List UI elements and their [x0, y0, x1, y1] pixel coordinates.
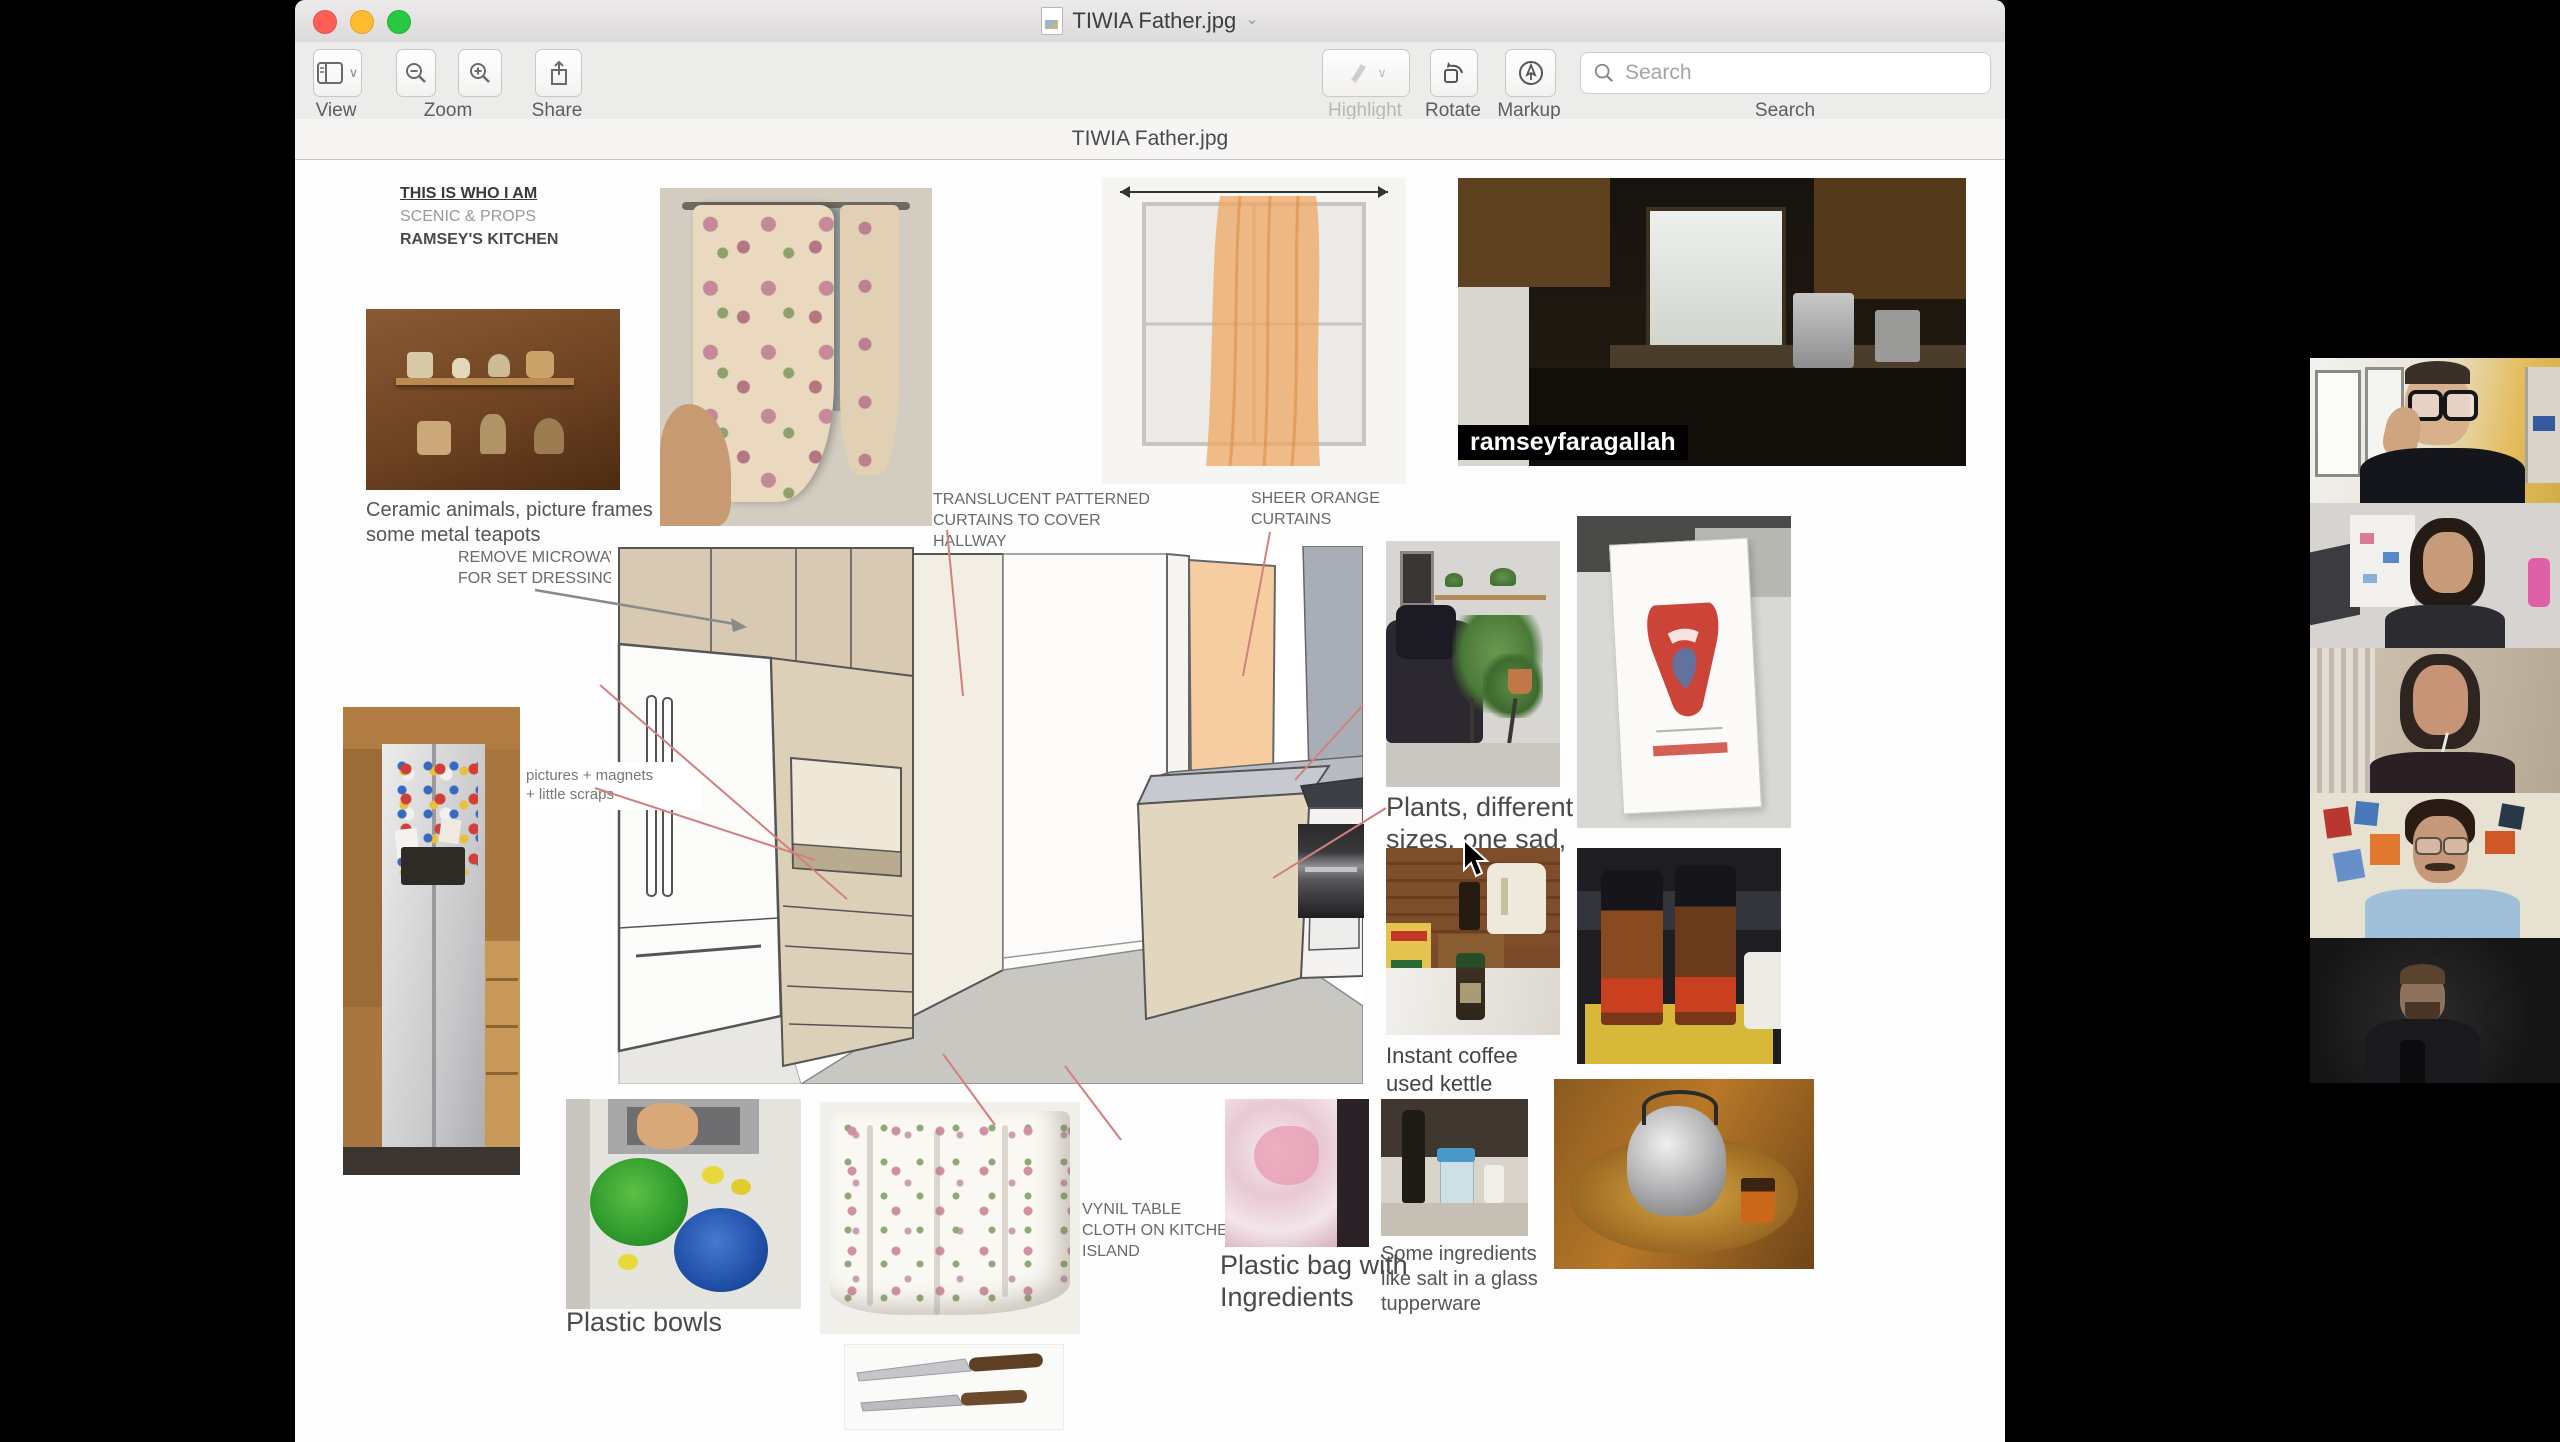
picture-frame-shape [526, 351, 554, 378]
ceramic-shelf-photo [366, 309, 620, 490]
fridge-magnets-photo [343, 707, 520, 1175]
wall-card-shape [2354, 801, 2379, 826]
glass-tupperware-shape [1440, 1157, 1474, 1206]
spice-jar-shape [1601, 870, 1662, 1026]
plastic-bowls-photo [566, 1099, 801, 1309]
floor-shadow-shape [343, 1147, 520, 1175]
share-icon [548, 60, 570, 86]
toolbar: ∨ View Zoom [295, 42, 2005, 119]
knives-photo [844, 1344, 1064, 1430]
jar-label-shape [1460, 983, 1481, 1003]
knives-graphic [845, 1345, 1063, 1429]
translucent-curtains-caption: TRANSLUCENT PATTERNED CURTAINS TO COVER … [933, 490, 1150, 552]
tablecloth-photo [820, 1102, 1080, 1334]
bag-contents-shape [1254, 1126, 1319, 1185]
window-shape [2315, 370, 2361, 478]
bag-logo-graphic [1610, 539, 1761, 814]
search-field[interactable] [1580, 52, 1991, 94]
search-icon [1593, 62, 1615, 84]
kettle-photo [1554, 1079, 1814, 1269]
terracotta-pot-shape [1508, 669, 1532, 694]
view-button[interactable]: ∨ [313, 49, 362, 97]
markup-pen-icon [1517, 59, 1545, 87]
magnifier-plus-icon [468, 61, 492, 85]
preview-window: TIWIA Father.jpg ⌄ ∨ View [295, 0, 2005, 1442]
markup-button[interactable] [1505, 49, 1556, 97]
plastic-bag-photo [1225, 1099, 1369, 1247]
search-input[interactable] [1623, 60, 1957, 86]
upper-cabinet-shape [1814, 178, 1966, 299]
participant-hair [2405, 361, 2470, 384]
stove-handle-shape [1305, 867, 1358, 872]
board-title: THIS IS WHO I AM [400, 182, 558, 205]
eyeglasses-shape [2443, 390, 2479, 421]
metal-teapot-shape [534, 418, 564, 454]
orange-curtain-graphic [1102, 178, 1406, 484]
mustache-shape [2425, 863, 2455, 872]
white-cup-shape [1744, 952, 1781, 1030]
window-titlebar[interactable]: TIWIA Father.jpg ⌄ [295, 0, 2005, 43]
fridge-dispenser-shape [401, 847, 465, 884]
upper-cabinet-shape [343, 707, 520, 749]
kitchen-sketch-drawing [611, 546, 1363, 1084]
oil-bottle-shape [1402, 1110, 1426, 1203]
chevron-down-icon: ∨ [349, 65, 359, 81]
participant-torso [2365, 889, 2520, 938]
eyeglasses-shape [2415, 837, 2442, 856]
mouse-cursor [1462, 838, 1492, 880]
paper-scrap-shape [439, 818, 462, 845]
plant-shelf-shape [1435, 595, 1546, 600]
shelf-item-shape [2533, 416, 2556, 431]
counter-shape [1381, 1203, 1528, 1236]
paper-bag-shape [1609, 538, 1762, 815]
sidebar-view-icon [317, 62, 343, 84]
upper-cabinet-shape [1458, 178, 1610, 287]
poster-mark [2383, 552, 2400, 563]
drawer-line [486, 978, 518, 981]
small-plant-shape [1490, 568, 1516, 586]
wood-shelf-shape [396, 378, 574, 385]
tea-glass-shape [1741, 1178, 1775, 1224]
appliance-shape [1875, 310, 1921, 362]
picture-frame-shape [407, 352, 433, 378]
screen: { "window": { "title": "TIWIA Father.jpg… [0, 0, 2560, 1442]
drawer-line [486, 1025, 518, 1028]
orange-curtains-photo [1102, 178, 1406, 484]
dark-background-shape [1337, 1099, 1369, 1247]
poster-mark [2363, 574, 2377, 583]
participant-torso [2385, 605, 2505, 649]
lemon-shape [618, 1254, 638, 1270]
window-shape [1646, 207, 1786, 353]
ceramic-animal-shape [488, 354, 510, 377]
coffee-tin-shape [1459, 882, 1480, 931]
video-name-tag: ramseyfaragallah [1458, 425, 1688, 460]
spice-jars-photo [1577, 848, 1781, 1064]
wall-card-shape [2333, 849, 2365, 882]
plants-photo [1386, 541, 1560, 787]
ingredients-photo [1381, 1099, 1528, 1236]
highlight-button[interactable]: ∨ [1322, 49, 1410, 97]
floor-shape [1386, 743, 1560, 787]
participant-hair [2400, 964, 2445, 984]
remove-microwave-caption: REMOVE MICROWAVE FOR SET DRESSING [458, 548, 630, 590]
fold-shadow [867, 1125, 873, 1306]
video-participant-5[interactable] [2310, 938, 2560, 1083]
ingredients-caption: Some ingredients like salt in a glass tu… [1381, 1242, 1538, 1317]
filename-bar: TIWIA Father.jpg [295, 119, 2005, 160]
kettle-handle-shape [1642, 1090, 1718, 1124]
participant-torso [2360, 448, 2525, 503]
share-button[interactable] [535, 49, 582, 97]
small-plant-shape [1445, 573, 1463, 587]
sheer-curtains-caption: SHEER ORANGE CURTAINS [1251, 489, 1380, 531]
video-participant-3[interactable] [2310, 648, 2560, 793]
framed-photo-shape [417, 421, 451, 455]
stove-inset-photo [1298, 824, 1364, 918]
eyeglasses-shape [2443, 837, 2470, 856]
kettle-gauge-shape [1501, 878, 1508, 915]
salt-bag-photo [1577, 516, 1791, 828]
magnifier-minus-icon [404, 61, 428, 85]
spice-jar-shape [1675, 865, 1736, 1025]
metal-teapot-shape [480, 414, 506, 454]
vynil-caption: VYNIL TABLE CLOTH ON KITCHEN ISLAND [1082, 1200, 1239, 1262]
fold-shadow [934, 1130, 940, 1316]
blue-bowl-shape [674, 1208, 768, 1292]
microphone-shape [2400, 1040, 2425, 1084]
hands-shape [637, 1103, 698, 1149]
fold-shadow [1002, 1125, 1008, 1297]
side-cabinet-shape [343, 749, 382, 1006]
participant-torso [2370, 752, 2515, 793]
participant-face [2413, 665, 2468, 735]
drawer-unit-shape [485, 941, 520, 1147]
wall-frame-shape [1400, 551, 1434, 606]
board-subtitle: SCENIC & PROPS [400, 205, 558, 228]
plastic-bowls-caption: Plastic bowls [566, 1307, 722, 1339]
instant-coffee-caption: Instant coffee used kettle [1386, 1042, 1518, 1097]
wall-card-shape [2370, 834, 2400, 866]
video-participant-2[interactable] [2310, 503, 2560, 648]
poster-shape [2350, 515, 2415, 608]
green-bowl-shape [590, 1158, 689, 1246]
zoom-in-button[interactable] [458, 49, 502, 97]
chevron-down-icon: ∨ [1377, 65, 1387, 81]
ceramic-caption: Ceramic animals, picture frames some met… [366, 498, 653, 548]
moodboard-document: THIS IS WHO I AM SCENIC & PROPS RAMSEY'S… [295, 160, 2005, 1442]
board-header: THIS IS WHO I AM SCENIC & PROPS RAMSEY'S… [400, 182, 558, 252]
kitchen-video-still: ramseyfaragallah [1458, 178, 1966, 466]
blue-lid-shape [1437, 1148, 1475, 1162]
drawer-line [486, 1072, 518, 1075]
coffee-machine-shape [1793, 293, 1854, 368]
board-location: RAMSEY'S KITCHEN [400, 228, 558, 251]
video-participant-1[interactable] [2310, 358, 2560, 503]
video-participant-4[interactable] [2310, 793, 2560, 938]
title-chevron-icon[interactable]: ⌄ [1245, 9, 1258, 29]
kitchen-sketch [611, 546, 1363, 1084]
rotate-icon [1441, 60, 1467, 86]
blinds-shape [2310, 648, 2375, 793]
kettle-shape [1487, 863, 1546, 934]
participant-face [2423, 532, 2473, 593]
bag-on-couch-shape [1396, 605, 1455, 659]
lemon-shape [731, 1179, 751, 1195]
counter-edge-shape [566, 1099, 590, 1309]
salt-shaker-shape [1484, 1165, 1505, 1203]
window-title: TIWIA Father.jpg [1072, 8, 1236, 34]
zoom-out-button[interactable] [396, 49, 436, 97]
poster-mark [2360, 533, 2374, 544]
wall-card-shape [2485, 831, 2515, 854]
lemon-shape [702, 1166, 724, 1184]
highlighter-pen-icon [1345, 60, 1371, 86]
rotate-button[interactable] [1430, 49, 1478, 97]
document-proxy-icon[interactable] [1041, 7, 1063, 35]
plastic-bag-caption: Plastic bag with Ingredients [1220, 1250, 1408, 1314]
ceramic-animal-shape [452, 358, 470, 378]
floral-curtains-photo [660, 188, 932, 526]
maxi-label-shape [1391, 931, 1427, 941]
wall-card-shape [2498, 803, 2524, 830]
pink-object-shape [2528, 558, 2551, 607]
maxi-label-shape [1391, 960, 1423, 968]
wall-card-shape [2323, 806, 2352, 838]
magnets-caption: pictures + magnets + little scraps [520, 762, 702, 810]
floral-curtain-panel-shape [840, 205, 900, 475]
coffee-jar-shape [1456, 953, 1486, 1020]
